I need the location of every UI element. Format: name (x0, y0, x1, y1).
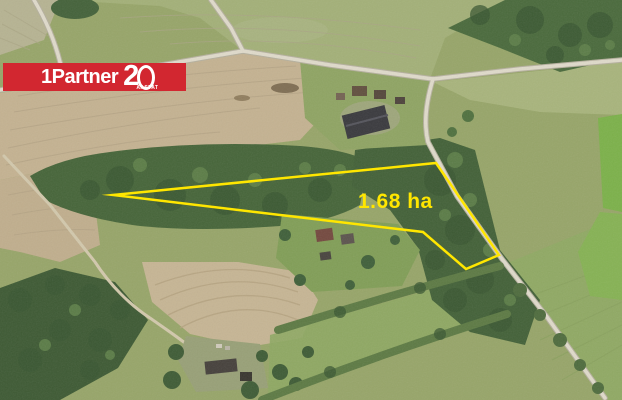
anniversary-suffix: AASTAT (136, 85, 158, 91)
property-listing-aerial-image: 1.68 ha 1Partner 2 AASTAT (0, 0, 622, 400)
brand-wordmark: 1Partner (41, 67, 118, 87)
anniversary-badge: 2 AASTAT (123, 64, 155, 90)
aerial-photograph: 1.68 ha (0, 0, 622, 400)
parcel-area-label: 1.68 ha (358, 190, 433, 213)
brand-logo: 1Partner 2 AASTAT (3, 63, 186, 91)
photo-grain (0, 0, 622, 400)
